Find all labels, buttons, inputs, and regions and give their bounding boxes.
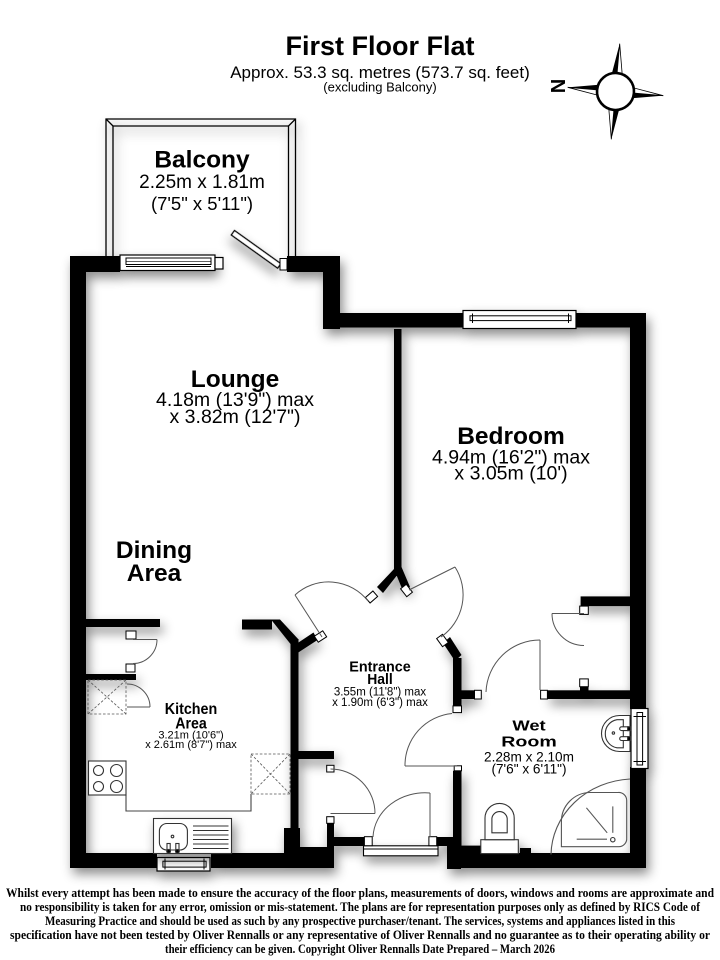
svg-text:their efficiency can be given.: their efficiency can be given. Copyright… [165,942,555,956]
svg-text:First Floor Flat: First Floor Flat [286,31,475,61]
svg-text:no responsibility is taken for: no responsibility is taken for any error… [20,900,701,914]
svg-text:Area: Area [127,560,182,587]
svg-text:(excluding Balcony): (excluding Balcony) [323,80,436,95]
svg-text:specification have not been te: specification have not been tested by Ol… [10,928,710,942]
svg-text:x 2.61m (8'7") max: x 2.61m (8'7") max [145,739,237,751]
svg-text:x 3.05m (10'): x 3.05m (10') [454,463,567,485]
svg-text:Measuring Practice and should: Measuring Practice and should be used as… [45,914,675,928]
svg-text:N: N [548,79,570,93]
svg-text:x 3.82m (12'7"): x 3.82m (12'7") [170,406,301,428]
svg-text:(7'6" x 6'11"): (7'6" x 6'11") [491,761,566,776]
svg-text:x 1.90m (6'3") max: x 1.90m (6'3") max [332,697,428,709]
svg-text:Room: Room [501,734,557,751]
svg-text:Hall: Hall [367,671,393,688]
svg-text:2.25m x 1.81m: 2.25m x 1.81m [139,172,265,193]
svg-text:Wet: Wet [512,717,545,734]
svg-text:Whilst every attempt has been: Whilst every attempt has been made to en… [6,886,714,900]
svg-text:(7'5" x 5'11"): (7'5" x 5'11") [151,193,253,214]
svg-text:Balcony: Balcony [154,147,250,174]
